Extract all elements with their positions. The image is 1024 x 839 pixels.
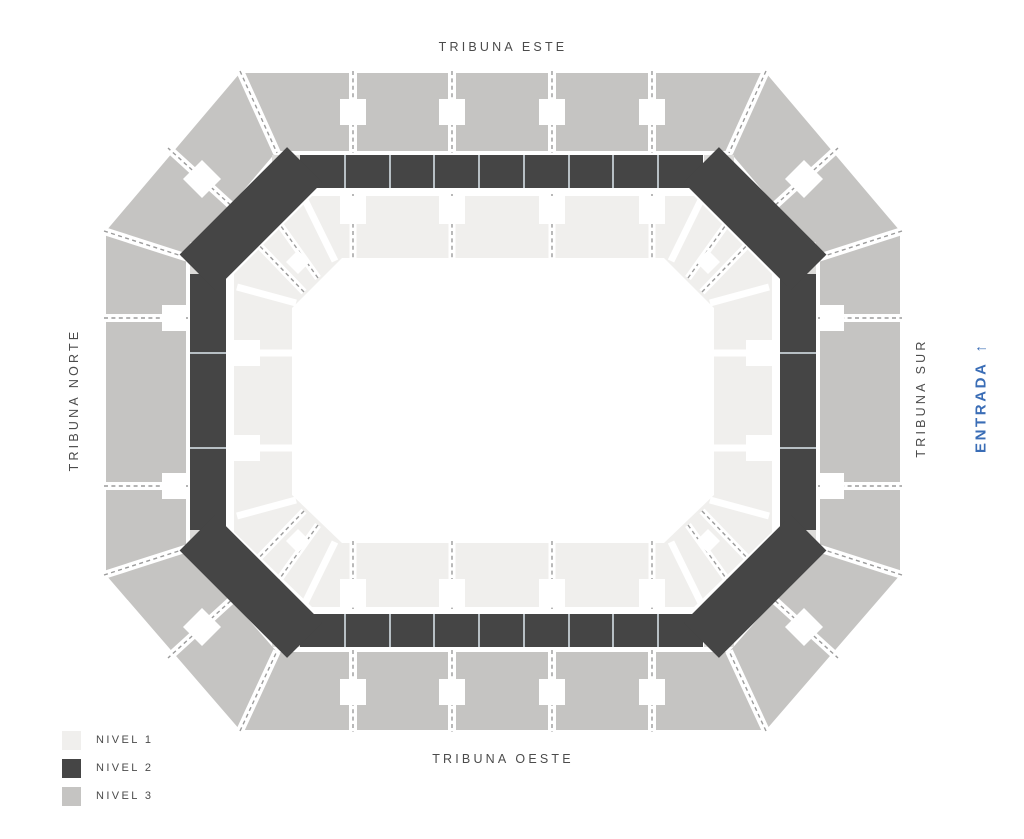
legend-label-nivel-2: NIVEL 2 [96, 759, 153, 778]
level1-ring[interactable] [234, 196, 772, 607]
legend-label-nivel-1: NIVEL 1 [96, 731, 153, 750]
label-tribuna-oeste: TRIBUNA OESTE [432, 752, 574, 766]
label-tribuna-norte: TRIBUNA NORTE [67, 329, 81, 472]
legend-swatch-nivel-1 [62, 731, 81, 750]
stadium-map [0, 0, 1024, 839]
label-tribuna-sur: TRIBUNA SUR [914, 338, 928, 457]
entrance-arrow-icon: ↑ [973, 345, 990, 353]
legend-item-nivel-2: NIVEL 2 [62, 759, 153, 778]
entrance-label: ENTRADA↑ [973, 345, 990, 453]
legend: NIVEL 1 NIVEL 2 NIVEL 3 [62, 731, 153, 815]
legend-label-nivel-3: NIVEL 3 [96, 787, 153, 806]
level2-south-strip[interactable] [780, 274, 816, 530]
legend-swatch-nivel-3 [62, 787, 81, 806]
seat-map-canvas: TRIBUNA ESTE TRIBUNA OESTE TRIBUNA NORTE… [0, 0, 1024, 839]
legend-item-nivel-1: NIVEL 1 [62, 731, 153, 750]
entrance-text: ENTRADA [973, 361, 990, 453]
label-tribuna-este: TRIBUNA ESTE [439, 40, 568, 54]
level2-west-strip[interactable] [300, 614, 703, 647]
legend-item-nivel-3: NIVEL 3 [62, 787, 153, 806]
legend-swatch-nivel-2 [62, 759, 81, 778]
level2-east-strip[interactable] [300, 155, 703, 188]
level2-north-strip[interactable] [190, 274, 226, 530]
